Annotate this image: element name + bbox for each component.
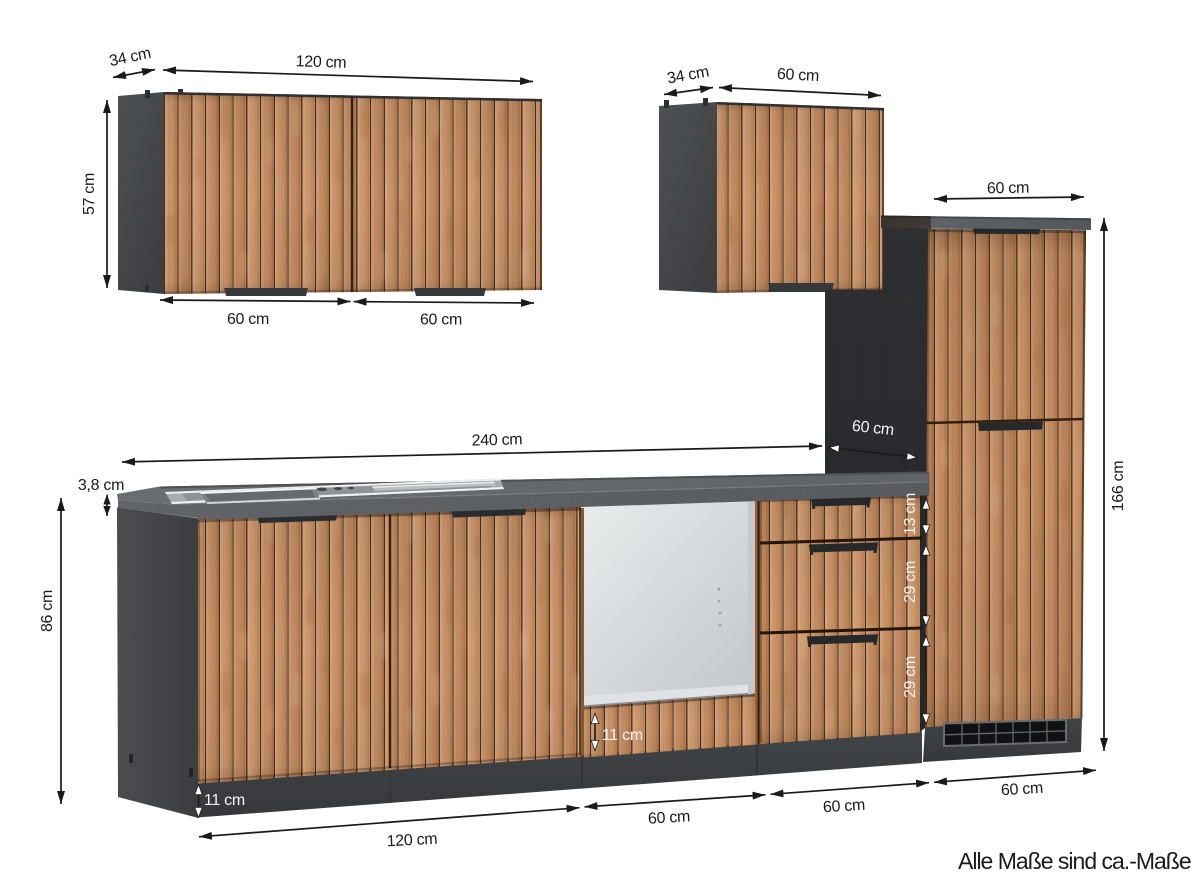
svg-text:3,8 cm: 3,8 cm: [78, 477, 124, 494]
svg-text:29 cm: 29 cm: [902, 656, 919, 698]
svg-text:60 cm: 60 cm: [420, 312, 462, 329]
svg-text:120 cm: 120 cm: [386, 831, 437, 851]
svg-text:240 cm: 240 cm: [471, 431, 522, 449]
svg-text:11 cm: 11 cm: [602, 727, 643, 744]
svg-text:60 cm: 60 cm: [227, 311, 269, 328]
svg-text:60 cm: 60 cm: [987, 180, 1029, 198]
svg-text:Alle Maße sind ca.-Maße: Alle Maße sind ca.-Maße: [958, 848, 1191, 874]
svg-text:60 cm: 60 cm: [823, 797, 866, 817]
svg-text:86 cm: 86 cm: [39, 590, 56, 632]
svg-text:60 cm: 60 cm: [777, 66, 820, 85]
svg-text:120 cm: 120 cm: [295, 53, 346, 72]
svg-text:11 cm: 11 cm: [204, 792, 245, 809]
svg-text:60 cm: 60 cm: [1001, 780, 1044, 800]
svg-text:13 cm: 13 cm: [902, 493, 919, 535]
svg-text:57 cm: 57 cm: [81, 173, 98, 215]
svg-text:166 cm: 166 cm: [1110, 461, 1127, 512]
svg-text:60 cm: 60 cm: [648, 808, 691, 827]
svg-text:29 cm: 29 cm: [902, 561, 919, 603]
